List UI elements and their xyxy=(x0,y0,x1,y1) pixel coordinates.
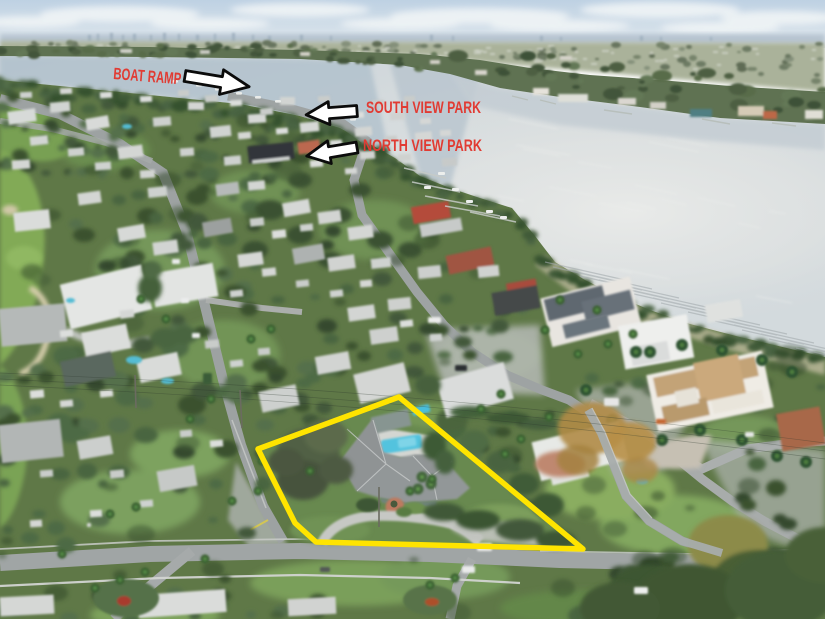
svg-text:SOUTH VIEW PARK: SOUTH VIEW PARK xyxy=(366,99,481,117)
svg-text:NORTH VIEW PARK: NORTH VIEW PARK xyxy=(363,137,482,155)
